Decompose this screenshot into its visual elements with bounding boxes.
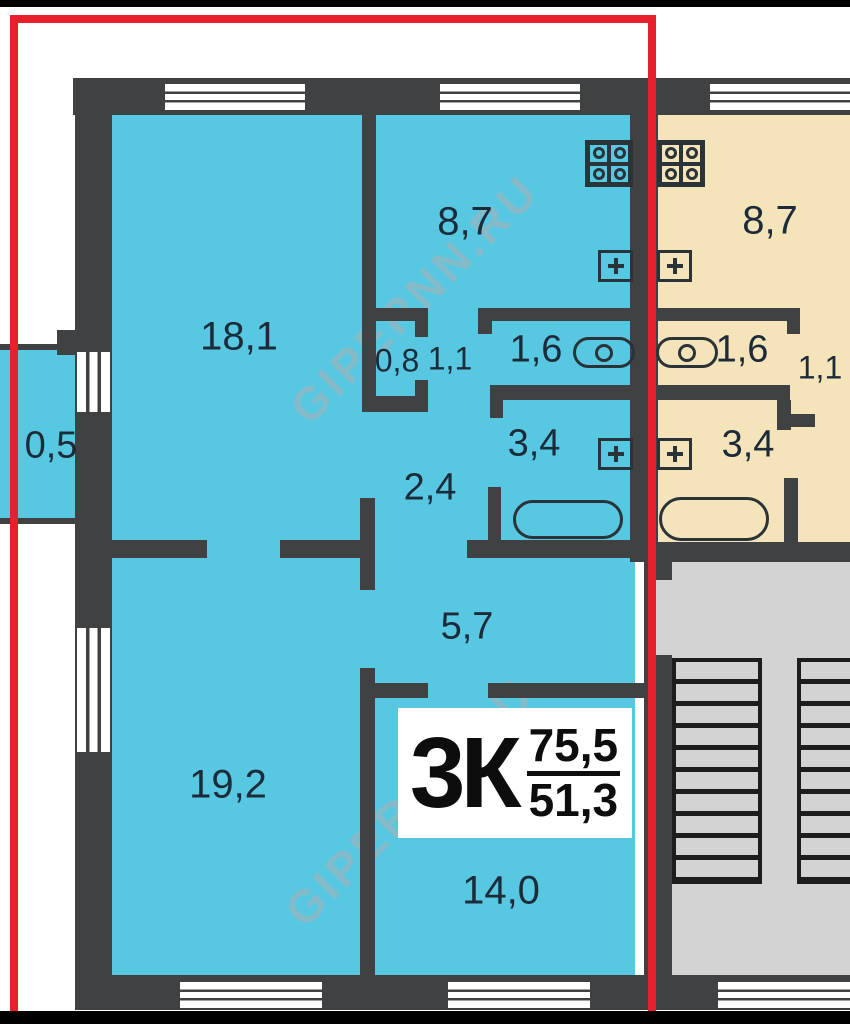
room-label-kitchen-right: 8,7 bbox=[742, 199, 798, 244]
stove-burner-icon bbox=[660, 143, 681, 164]
wall-segment bbox=[787, 321, 800, 334]
stove-burner-icon bbox=[681, 143, 702, 164]
stove-burner-icon bbox=[681, 164, 702, 185]
window bbox=[718, 982, 850, 1008]
letterbox-bottom bbox=[0, 1011, 850, 1024]
plus-icon bbox=[667, 258, 683, 274]
sink-icon bbox=[657, 250, 692, 282]
wall-stairwell-top bbox=[656, 542, 850, 562]
wall-stairwell-left-lower bbox=[656, 655, 672, 1010]
wall-segment bbox=[777, 400, 791, 430]
toilet-icon bbox=[656, 337, 718, 368]
apartment-highlight-border bbox=[10, 15, 656, 1024]
room-label-wc-right: 1,6 bbox=[716, 329, 769, 372]
wall-segment bbox=[791, 414, 815, 427]
window bbox=[710, 84, 850, 110]
floorplan-canvas: GIPERNN.RU GIPERNN.RU bbox=[0, 0, 850, 1024]
wall-segment bbox=[656, 385, 790, 400]
stove-icon bbox=[657, 140, 705, 187]
room-label-bath-right: 3,4 bbox=[722, 424, 775, 467]
stair-flight bbox=[672, 658, 762, 884]
plus-icon bbox=[667, 446, 683, 462]
bathtub-icon bbox=[659, 497, 769, 541]
letterbox-top bbox=[0, 0, 850, 7]
sink-icon bbox=[657, 438, 692, 470]
wall-stairwell-left-upper bbox=[656, 562, 672, 580]
room-label-corridor-right: 1,1 bbox=[798, 350, 842, 387]
wall-segment bbox=[784, 478, 798, 544]
stove-burner-icon bbox=[660, 164, 681, 185]
wall-segment bbox=[656, 308, 800, 321]
stair-flight bbox=[797, 658, 850, 884]
